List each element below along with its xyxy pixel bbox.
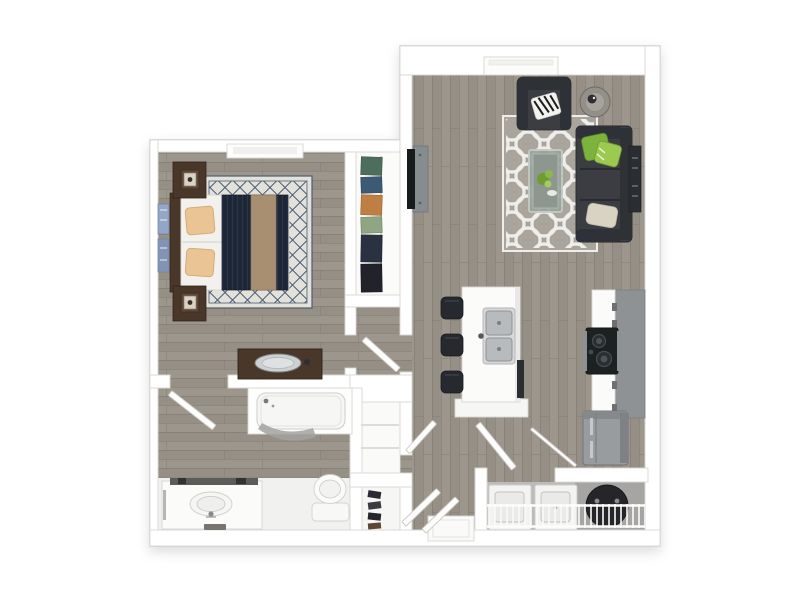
floor-plan-page [0, 0, 800, 600]
range-handle [583, 331, 587, 371]
bar-stools [441, 297, 463, 393]
tub-faucet [264, 399, 269, 404]
wall-closet-bottom [345, 295, 400, 307]
table-dish [547, 190, 557, 196]
side-table [580, 87, 610, 117]
bed-runner [251, 195, 276, 290]
toilet-seat [320, 480, 341, 498]
vanity-faucet [208, 511, 213, 516]
range [583, 328, 621, 374]
cabinet-handle [612, 320, 617, 328]
cabinet-handle [612, 381, 617, 389]
sink-drain [497, 321, 501, 325]
dresser-mirror-inner [262, 358, 294, 369]
bedroom-window-sill [233, 147, 297, 154]
dresser-knob [304, 359, 310, 365]
hall-passage-floor [400, 335, 412, 372]
tv-screen [407, 149, 415, 209]
nightstand-top [173, 162, 206, 198]
wall-left [150, 140, 158, 546]
kitchen-island [455, 287, 528, 417]
side-table-decor [588, 95, 597, 104]
wall-laundry-top [555, 468, 648, 482]
table-lamp-finial [188, 300, 193, 305]
wall-laundry-left [475, 468, 487, 530]
entry-console [484, 57, 558, 75]
island-bin [517, 360, 524, 398]
sofa-arm-bottom [576, 229, 622, 242]
armchair [517, 77, 571, 130]
burner-small [589, 350, 594, 355]
hanging-clothes [361, 157, 383, 293]
cabinet-handle [612, 303, 617, 311]
armchair-arm-left [517, 84, 528, 130]
vanity-item [236, 478, 246, 484]
vanity-item [178, 478, 186, 484]
vanity [162, 478, 262, 530]
linen-closet-floor [360, 400, 400, 475]
armchair-arm-right [560, 84, 571, 130]
wall-closet-divider [350, 473, 412, 487]
toilet-tank [312, 503, 349, 521]
sink-drain [497, 347, 501, 351]
bed-pillow-bottom [185, 248, 215, 277]
wall-bath-top-left [150, 375, 170, 388]
sink-faucet [478, 333, 484, 339]
bed-headboard [170, 193, 182, 292]
coffee-table [529, 150, 562, 212]
tub-drain [272, 405, 275, 408]
bed-pillow-top [185, 206, 215, 235]
vanity-sink-basin [197, 497, 225, 512]
island-sink [478, 308, 515, 364]
nightstand-bottom [173, 286, 206, 321]
dresser [238, 349, 322, 379]
wall-bottom [150, 530, 660, 546]
floor-plan-image [0, 0, 800, 600]
vanity-tray [204, 524, 226, 530]
bed [170, 193, 289, 292]
refrigerator-handle [590, 418, 593, 435]
wall-tv [407, 146, 428, 212]
wall-closet-left [345, 152, 356, 295]
wire-shelf [487, 504, 645, 528]
towel-bar [163, 490, 166, 520]
wall-corridor-upper [345, 307, 356, 335]
sofa [576, 126, 632, 242]
table-lamp-finial [188, 177, 193, 182]
wall-panel [629, 146, 641, 212]
room-laundry [487, 485, 645, 530]
refrigerator-handle [590, 441, 593, 458]
range-handle [617, 331, 621, 371]
refrigerator-side [620, 413, 628, 463]
refrigerator [583, 411, 628, 465]
